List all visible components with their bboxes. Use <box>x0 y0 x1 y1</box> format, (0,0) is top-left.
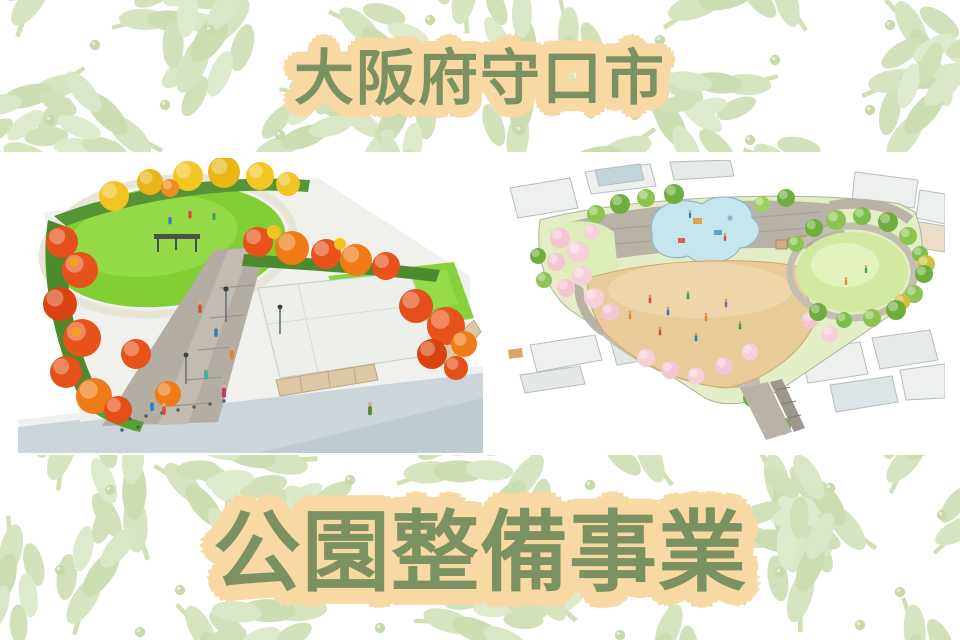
autumn-park-perspective-illustration <box>18 158 483 453</box>
title-bottom: 公園整備事業 <box>0 504 960 603</box>
park-aerial-plan-illustration <box>500 160 945 445</box>
title-top: 大阪府守口市 <box>0 46 960 113</box>
thumbnail-canvas: 大阪府守口市 公園整備事業 <box>0 0 960 640</box>
